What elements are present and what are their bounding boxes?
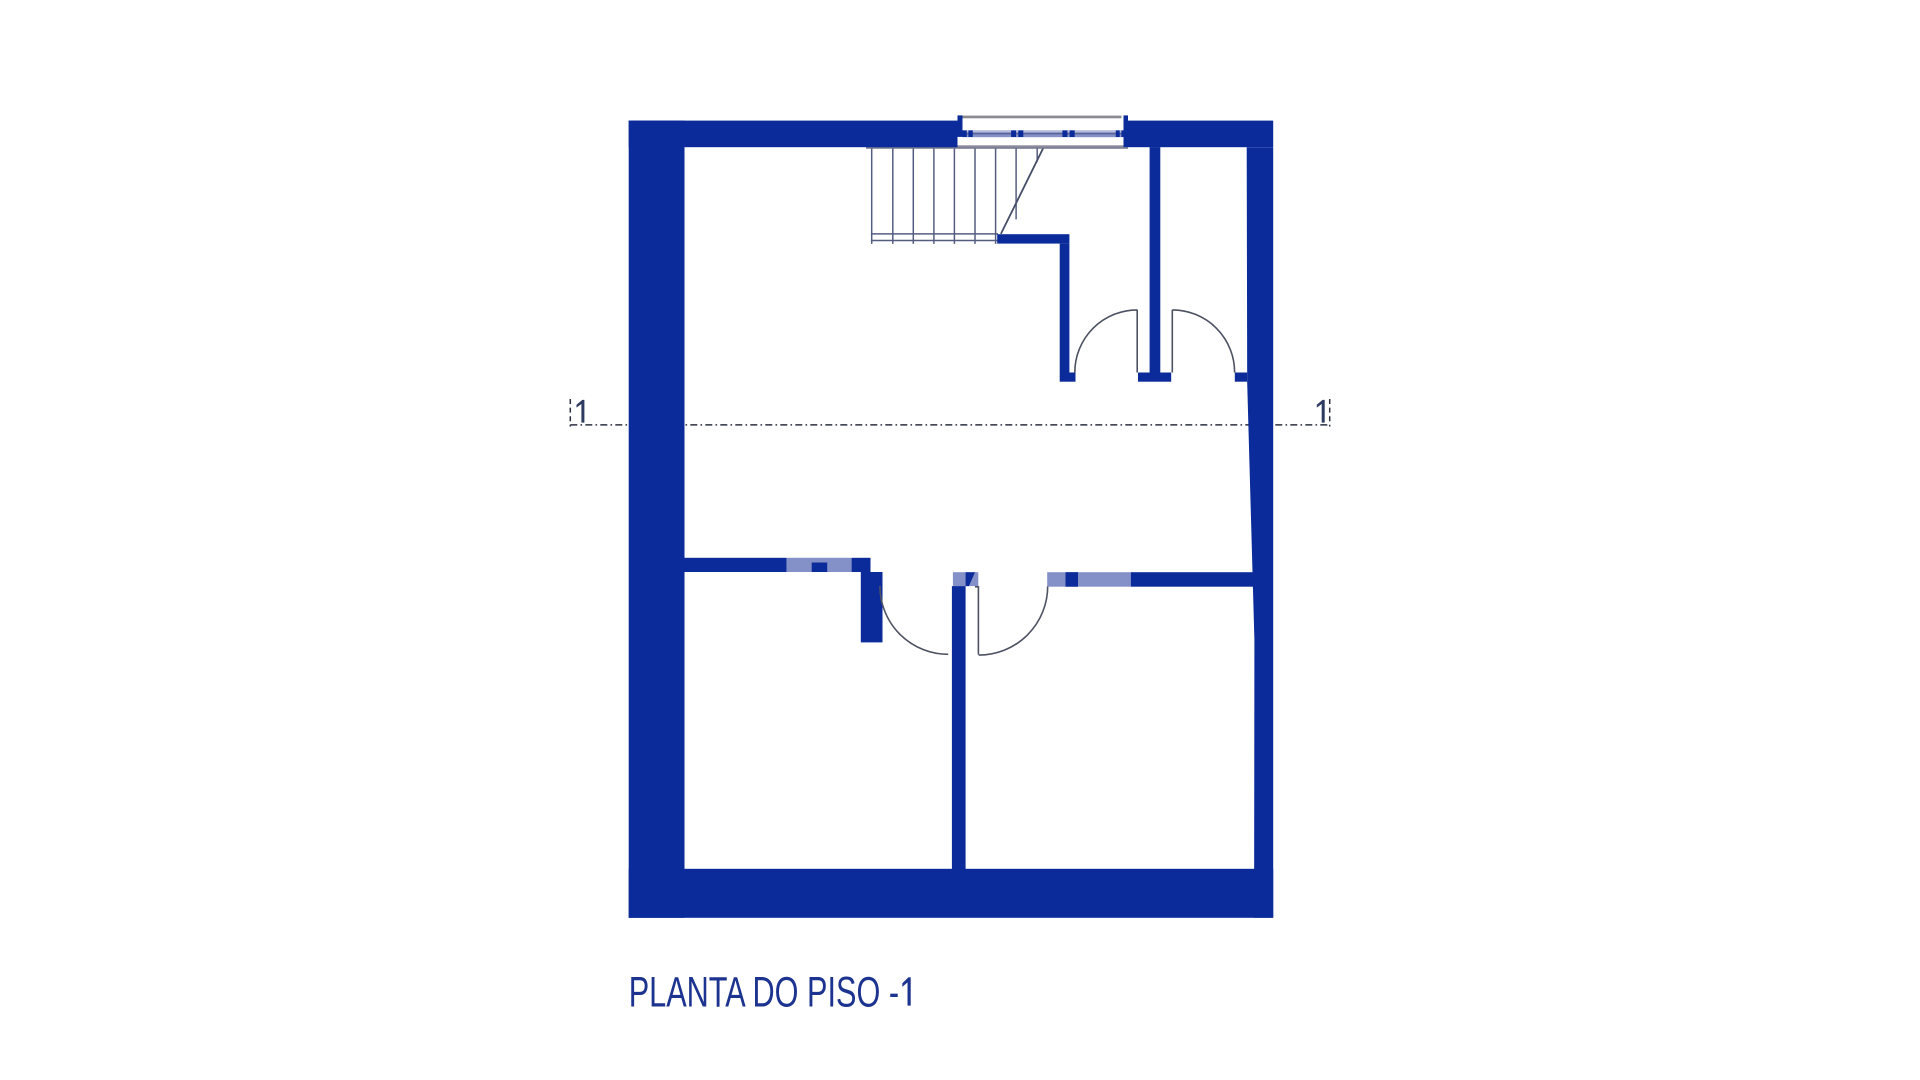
svg-text:PLANTA DO PISO -: PLANTA DO PISO - [629, 967, 899, 1015]
